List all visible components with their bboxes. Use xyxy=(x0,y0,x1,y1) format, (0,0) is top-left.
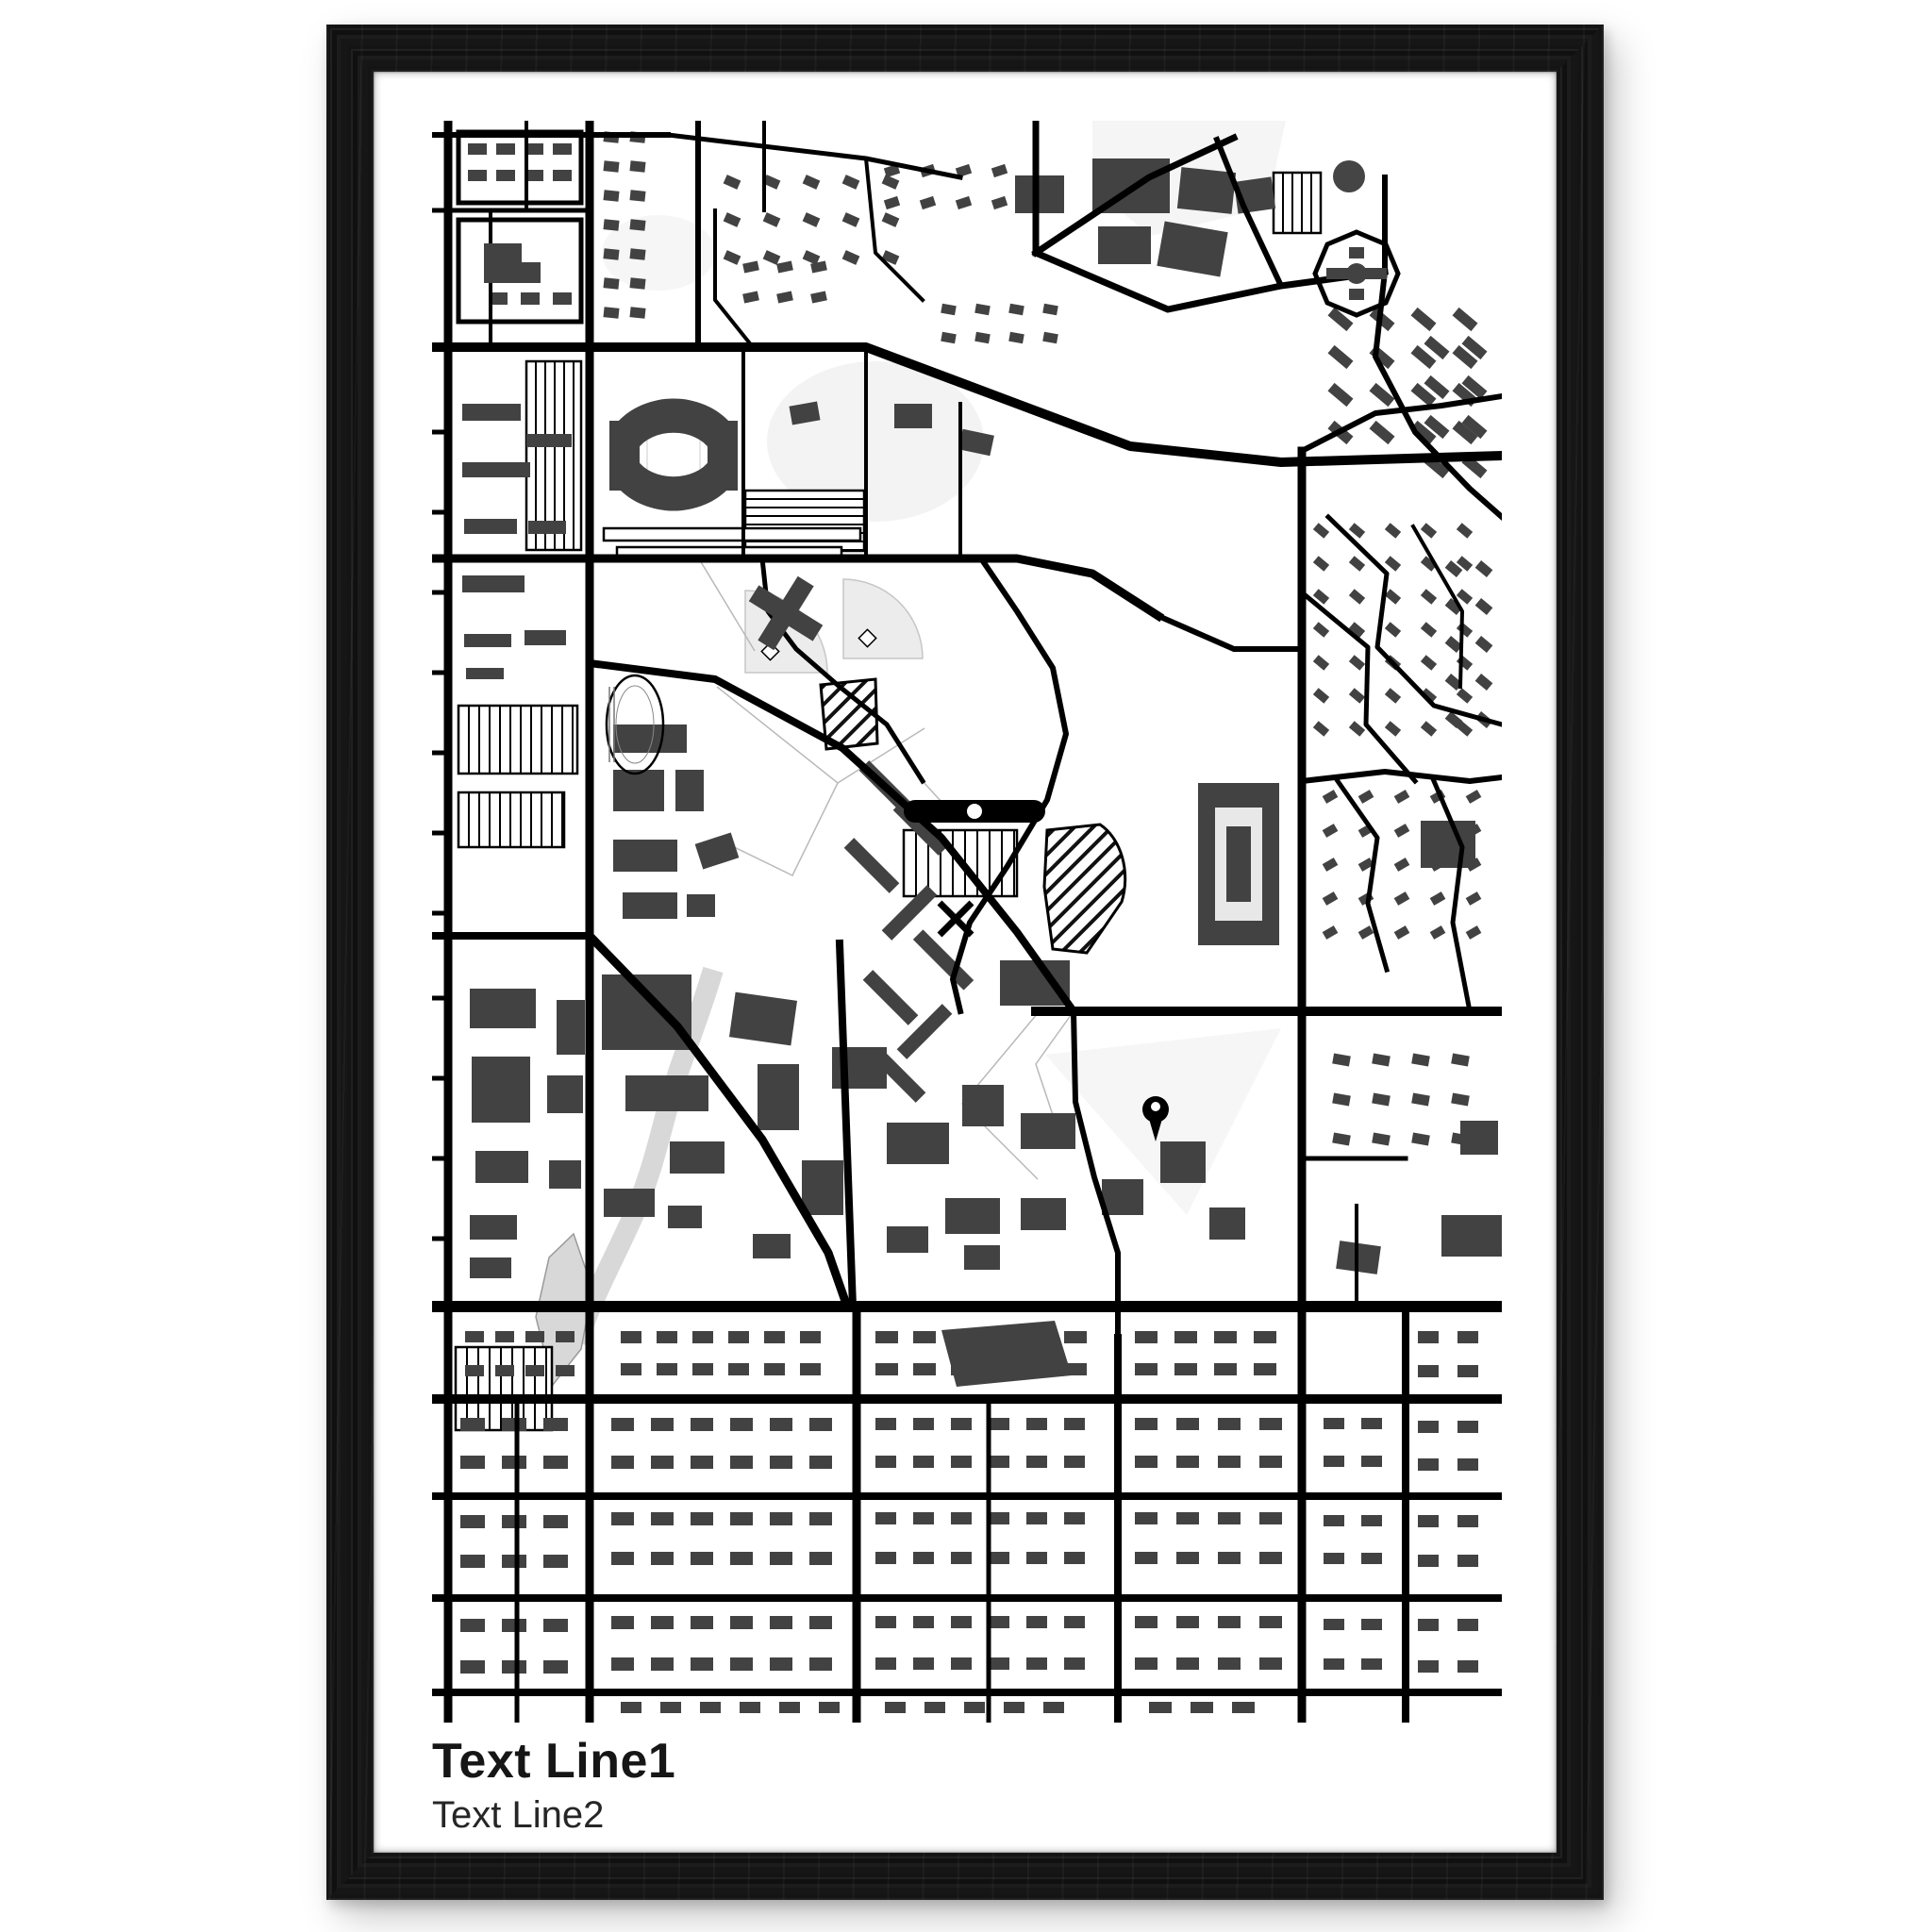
poster-frame: Text Line1 Text Line2 xyxy=(326,25,1604,1900)
frame-right-bar xyxy=(1557,25,1604,1900)
map-svg xyxy=(432,121,1502,1723)
frame-bottom-bar xyxy=(326,1853,1604,1900)
poster-caption: Text Line1 Text Line2 xyxy=(432,1734,675,1836)
frame-left-bar xyxy=(326,25,374,1900)
poster-subtitle: Text Line2 xyxy=(432,1794,675,1836)
frame-top-bar xyxy=(326,25,1604,72)
poster-mat: Text Line1 Text Line2 xyxy=(374,72,1557,1853)
poster-title: Text Line1 xyxy=(432,1734,675,1790)
city-map-artwork xyxy=(432,121,1502,1723)
